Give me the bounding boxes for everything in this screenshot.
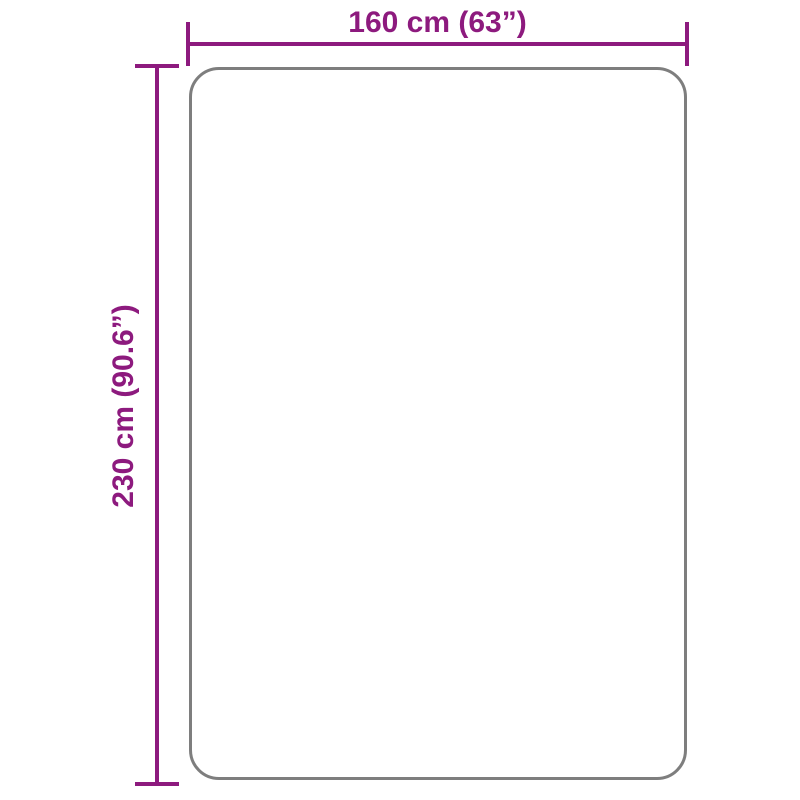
- height-dimension-cap-top: [135, 64, 179, 68]
- height-dimension-label: 230 cm (90.6”): [109, 304, 139, 507]
- height-dimension-line: [155, 64, 159, 786]
- height-dimension-cap-bottom: [135, 782, 179, 786]
- dimension-diagram: 160 cm (63”) 230 cm (90.6”): [0, 0, 800, 800]
- width-dimension-line: [186, 42, 689, 46]
- width-dimension-label: 160 cm (63”): [186, 8, 689, 38]
- rug-outline: [189, 67, 687, 780]
